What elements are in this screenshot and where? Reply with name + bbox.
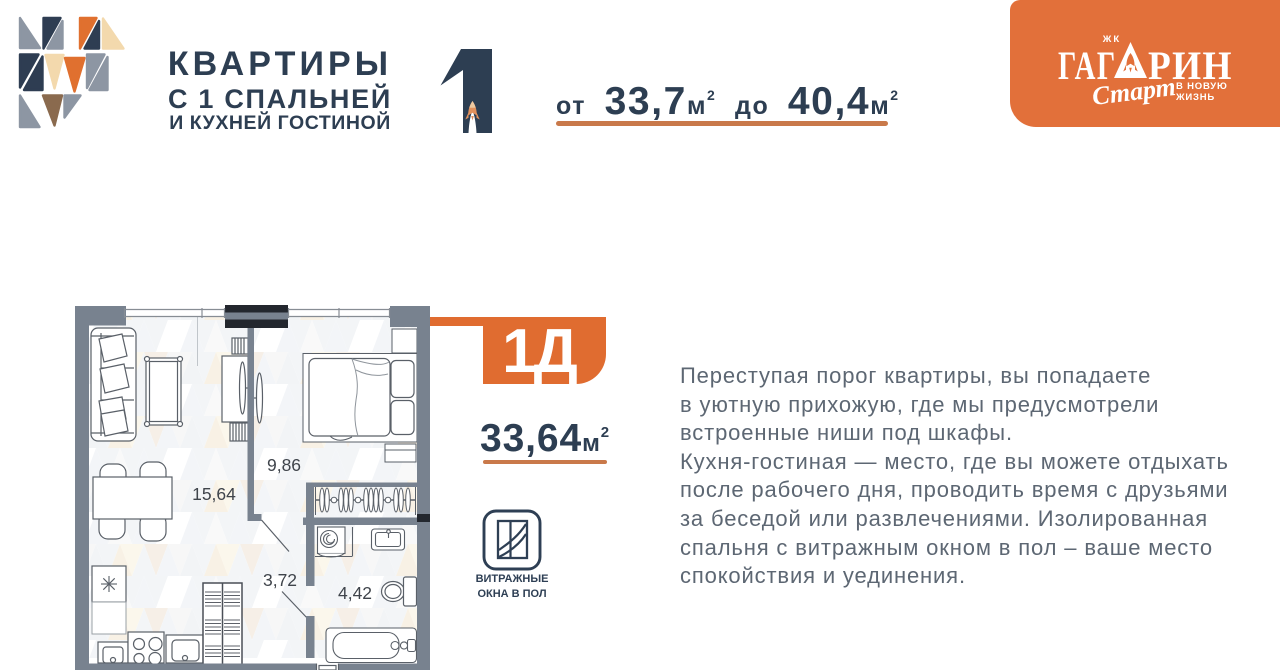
svg-text:15,64: 15,64 — [192, 484, 236, 504]
svg-text:9,86: 9,86 — [267, 455, 301, 475]
svg-text:3,72: 3,72 — [263, 570, 297, 590]
svg-text:4,42: 4,42 — [338, 583, 372, 603]
